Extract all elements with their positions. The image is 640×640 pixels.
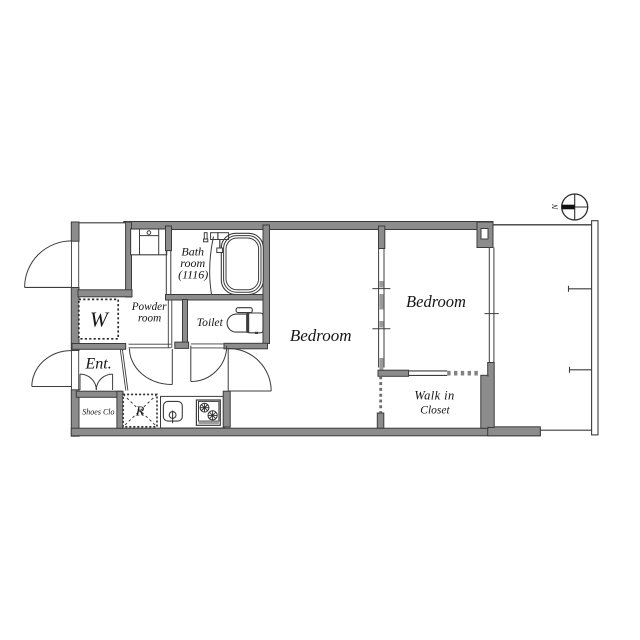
svg-text:room: room (138, 313, 161, 325)
svg-text:N: N (551, 204, 560, 211)
svg-text:Bedroom: Bedroom (406, 292, 466, 311)
svg-text:Walk in: Walk in (414, 389, 454, 403)
svg-text:W: W (90, 308, 110, 332)
svg-text:Bedroom: Bedroom (290, 326, 352, 345)
svg-text:R: R (135, 405, 145, 420)
svg-text:(1116): (1116) (178, 268, 208, 282)
svg-text:Ent.: Ent. (84, 355, 111, 372)
svg-text:Toilet: Toilet (197, 316, 224, 329)
svg-text:Closet: Closet (420, 405, 450, 417)
svg-text:Powder: Powder (131, 301, 167, 313)
svg-text:Shoes Clo: Shoes Clo (82, 407, 114, 416)
